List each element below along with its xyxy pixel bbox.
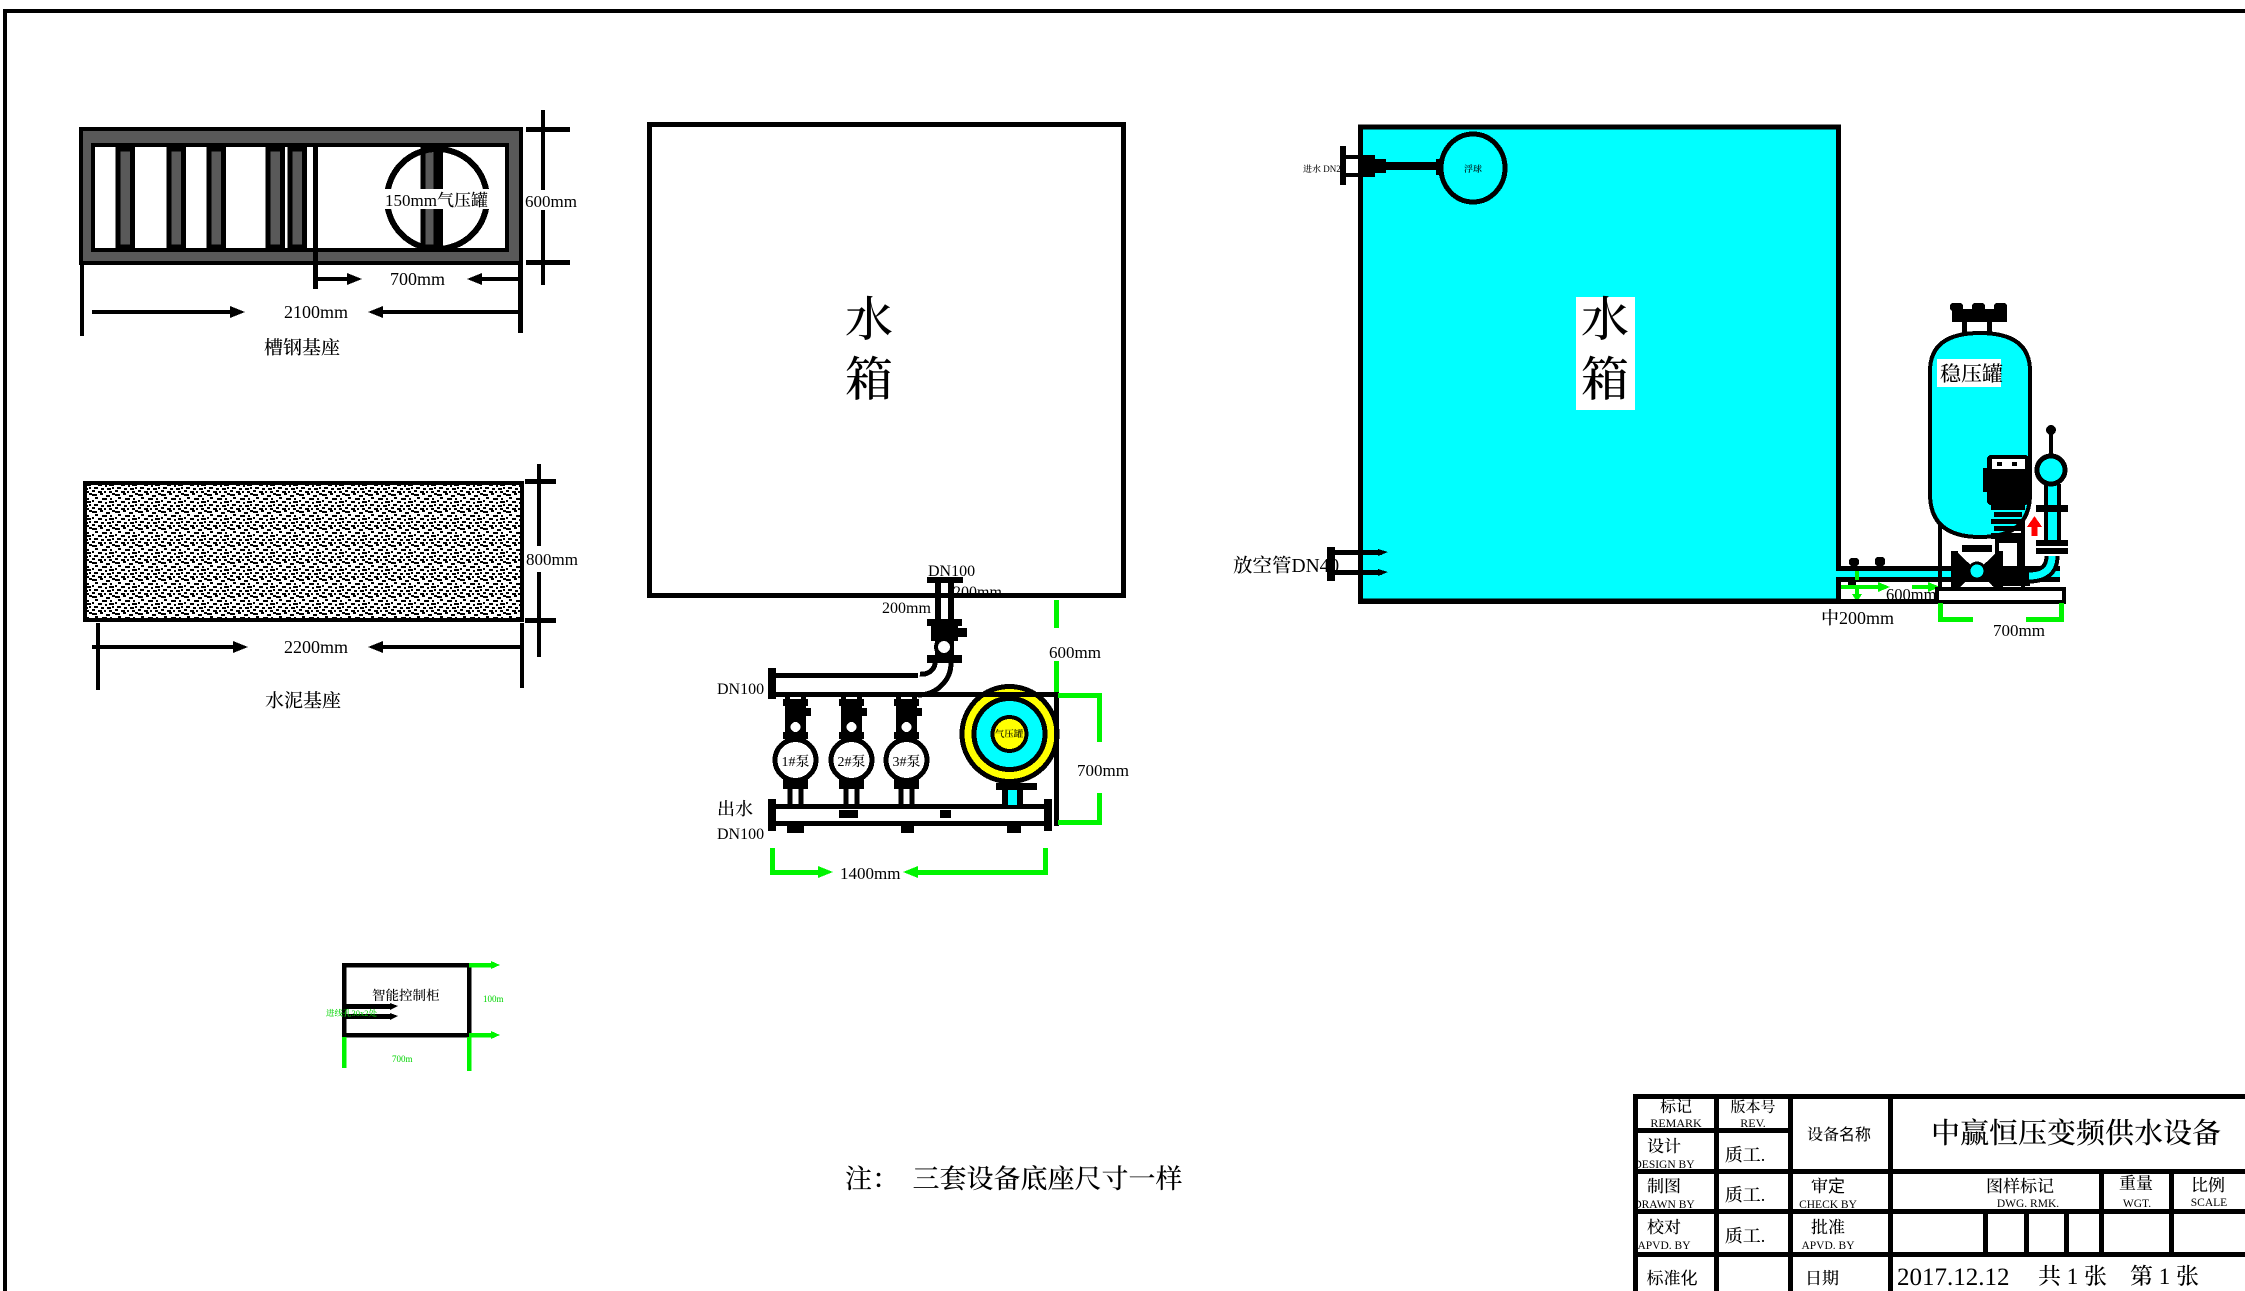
svg-text:箱: 箱 [845,354,893,407]
svg-text:质工.: 质工. [1725,1145,1766,1165]
svg-text:进水 DN25: 进水 DN25 [1303,164,1346,174]
svg-text:WGT.: WGT. [2123,1198,2151,1210]
svg-text:150mm气压罐: 150mm气压罐 [385,191,488,210]
svg-text:气压罐: 气压罐 [995,728,1024,740]
svg-text:设计: 设计 [1647,1137,1681,1156]
svg-text:700mm: 700mm [390,269,445,289]
svg-text:DN100: DN100 [717,681,764,698]
svg-text:800mm: 800mm [526,550,578,569]
svg-text:2017.12.12: 2017.12.12 [1897,1264,2010,1291]
svg-text:图样标记: 图样标记 [1986,1177,2054,1196]
svg-text:注： 三套设备底座尺寸一样: 注： 三套设备底座尺寸一样 [845,1164,1183,1194]
svg-text:100m: 100m [483,994,504,1004]
svg-text:制图: 制图 [1647,1177,1681,1196]
svg-text:中200mm: 中200mm [1821,608,1894,628]
svg-text:比例: 比例 [2191,1176,2225,1195]
svg-text:2#泵: 2#泵 [838,754,866,770]
svg-text:600mm: 600mm [1049,643,1101,662]
svg-text:水泥基座: 水泥基座 [265,690,341,712]
svg-text:DN100: DN100 [717,826,764,843]
svg-text:箱: 箱 [1581,354,1629,407]
svg-text:2100mm: 2100mm [284,302,348,322]
svg-text:智能控制柜: 智能控制柜 [372,988,440,1003]
svg-text:日期: 日期 [1805,1269,1839,1288]
svg-text:审定: 审定 [1811,1177,1845,1196]
svg-text:进线孔30x2处: 进线孔30x2处 [326,1008,378,1018]
svg-text:DWG. RMK.: DWG. RMK. [1997,1198,2059,1210]
svg-text:浮球: 浮球 [1464,164,1482,174]
svg-text:2200mm: 2200mm [284,637,348,657]
svg-text:700m: 700m [392,1054,413,1064]
svg-text:重量: 重量 [2119,1174,2153,1193]
svg-text:校对: 校对 [1647,1218,1681,1237]
svg-text:标记: 标记 [1660,1098,1692,1116]
svg-text:DESIGN BY: DESIGN BY [1633,1159,1695,1171]
svg-text:中赢恒压变频供水设备: 中赢恒压变频供水设备 [1931,1118,2221,1150]
svg-text:APVD. BY: APVD. BY [1637,1240,1691,1252]
svg-text:1400mm: 1400mm [840,864,900,883]
svg-text:槽钢基座: 槽钢基座 [264,337,340,359]
svg-text:设备名称: 设备名称 [1807,1126,1871,1144]
svg-text:700mm: 700mm [1077,761,1129,780]
svg-text:稳压罐: 稳压罐 [1940,362,2003,386]
svg-text:质工.: 质工. [1725,1226,1766,1246]
svg-text:水: 水 [845,294,893,347]
svg-text:DRAWN BY: DRAWN BY [1633,1199,1695,1211]
svg-text:共 1 张 第 1 张: 共 1 张 第 1 张 [2038,1264,2199,1289]
svg-text:1#泵: 1#泵 [782,754,810,770]
svg-text:REV.: REV. [1740,1116,1765,1130]
svg-text:质工.: 质工. [1725,1185,1766,1205]
svg-text:版本号: 版本号 [1730,1099,1775,1116]
svg-text:200mm: 200mm [882,600,931,617]
svg-text:SCALE: SCALE [2191,1197,2227,1209]
svg-text:CHECK BY: CHECK BY [1799,1199,1858,1211]
svg-text:出水: 出水 [717,799,753,819]
svg-text:APVD. BY: APVD. BY [1801,1240,1855,1252]
svg-text:3#泵: 3#泵 [893,754,921,770]
svg-text:放空管DN40: 放空管DN40 [1233,555,1339,577]
svg-text:700mm: 700mm [1993,621,2045,640]
svg-text:REMARK: REMARK [1650,1116,1702,1130]
svg-text:600mm: 600mm [525,192,577,211]
svg-text:批准: 批准 [1811,1218,1845,1237]
svg-text:标准化: 标准化 [1647,1269,1698,1288]
svg-text:水: 水 [1581,294,1629,347]
svg-text:200mm: 200mm [953,584,1002,601]
